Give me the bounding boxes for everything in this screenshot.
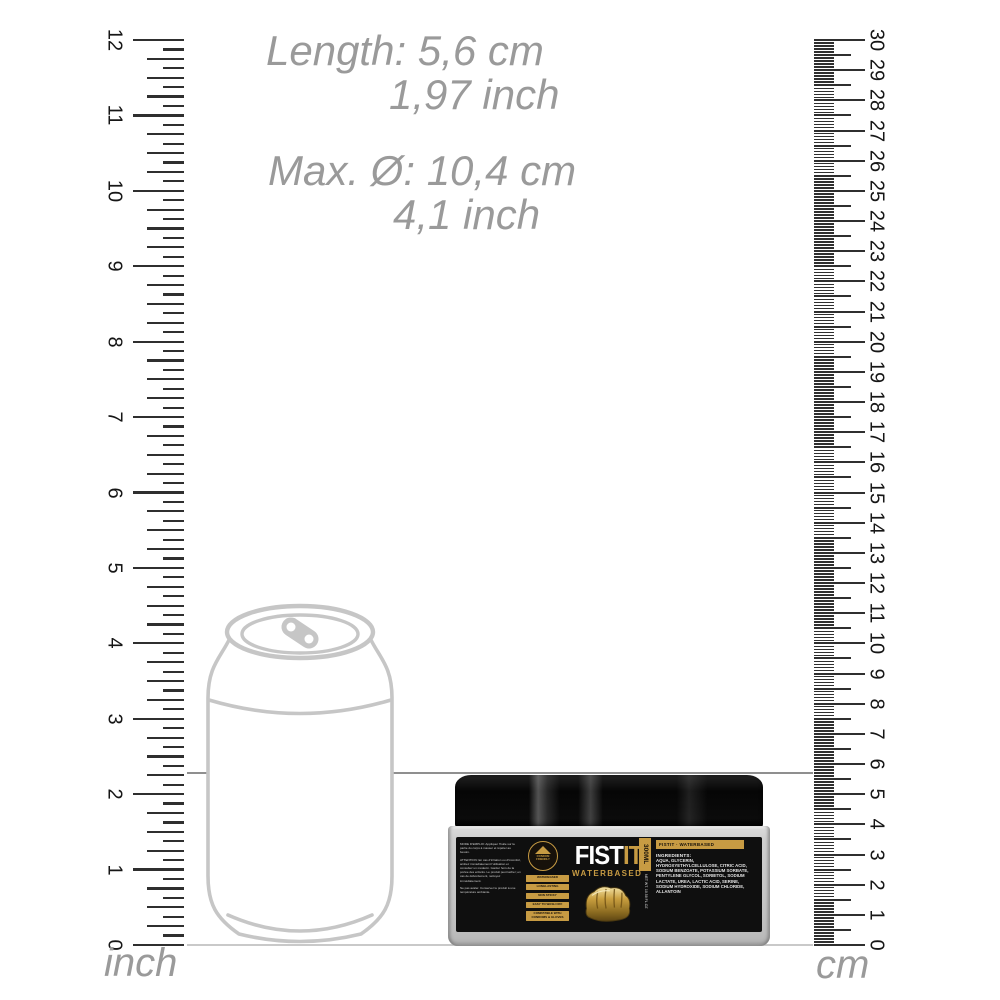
- ruler-tick: [814, 290, 834, 292]
- usage-paragraph: MODE D'EMPLOI: Appliquer l'huile sur la …: [460, 842, 521, 855]
- net-weight-text: NET WT. 10.58 FL.OZ: [640, 874, 651, 929]
- ruler-tick: [814, 640, 834, 642]
- ruler-tick: [147, 812, 184, 814]
- ruler-tick: [163, 859, 184, 861]
- ruler-tick: [814, 570, 834, 572]
- ruler-tick: [814, 827, 834, 829]
- ruler-tick: [814, 323, 834, 325]
- ruler-tick: [814, 453, 834, 455]
- ruler-tick: [814, 724, 834, 726]
- ruler-tick: [814, 302, 834, 304]
- ruler-tick: [147, 454, 184, 456]
- ruler-tick: [133, 642, 184, 644]
- ruler-tick: [814, 419, 834, 421]
- ruler-tick: [814, 293, 834, 295]
- ruler-tick: [133, 265, 184, 267]
- ruler-tick: [814, 223, 834, 225]
- ruler-tick: [814, 655, 834, 657]
- ruler-tick: [814, 649, 834, 651]
- ruler-tick: [814, 211, 834, 213]
- soda-can-illustration: [203, 600, 397, 950]
- ruler-tick: [814, 564, 834, 566]
- ruler-tick: [163, 256, 184, 258]
- ruler-tick: [814, 425, 834, 427]
- ruler-tick: [814, 854, 865, 856]
- ruler-tick: [814, 416, 851, 418]
- ruler-tick: [814, 468, 834, 470]
- ruler-tick: [814, 754, 834, 756]
- ruler-tick: [814, 899, 851, 901]
- ruler-tick: [163, 840, 184, 842]
- ruler-tick: [814, 718, 851, 720]
- ruler-tick: [814, 857, 834, 859]
- ruler-number: 23: [865, 240, 888, 262]
- can-tab-hole-top: [287, 623, 296, 632]
- ruler-number: 1: [103, 864, 126, 875]
- ruler-tick: [814, 389, 834, 391]
- ruler-number: 28: [865, 89, 888, 111]
- ruler-number: 24: [865, 210, 888, 232]
- ruler-tick: [814, 582, 865, 584]
- ruler-tick: [814, 579, 834, 581]
- ruler-tick: [163, 444, 184, 446]
- ruler-tick: [147, 473, 184, 475]
- ruler-tick: [814, 642, 865, 644]
- ingredients-block: FISTIT · WATERBASED INGREDIENTS: AQUA, G…: [656, 840, 758, 894]
- ruler-tick: [814, 208, 834, 210]
- ruler-tick: [814, 284, 834, 286]
- ruler-tick: [814, 84, 851, 86]
- ruler-tick: [163, 501, 184, 503]
- ruler-tick: [814, 498, 834, 500]
- ruler-tick: [814, 793, 865, 795]
- length-cm-text: Length: 5,6 cm: [266, 27, 544, 75]
- ruler-tick: [814, 510, 834, 512]
- ruler-tick: [814, 501, 834, 503]
- ruler-tick: [814, 45, 834, 47]
- ruler-tick: [814, 860, 834, 862]
- ruler-number: 18: [865, 391, 888, 413]
- ruler-tick: [133, 567, 184, 569]
- ruler-tick: [814, 821, 834, 823]
- ruler-tick: [814, 766, 834, 768]
- ruler-tick: [163, 124, 184, 126]
- ruler-tick: [814, 893, 834, 895]
- ruler-number: 11: [103, 105, 126, 126]
- ruler-tick: [163, 237, 184, 239]
- ruler-tick: [814, 199, 834, 201]
- ruler-tick: [814, 480, 834, 482]
- ruler-tick: [814, 196, 834, 198]
- ruler-tick: [814, 700, 834, 702]
- ruler-tick: [814, 534, 834, 536]
- ruler-tick: [814, 784, 834, 786]
- ruler-tick: [814, 217, 834, 219]
- ruler-tick: [814, 612, 865, 614]
- ruler-tick: [163, 671, 184, 673]
- ruler-tick: [163, 878, 184, 880]
- ruler-tick: [814, 742, 834, 744]
- ruler-tick: [147, 548, 184, 550]
- ruler-tick: [814, 679, 834, 681]
- ruler-tick: [147, 435, 184, 437]
- ruler-tick: [163, 463, 184, 465]
- ruler-tick: [814, 220, 865, 222]
- ruler-tick: [814, 413, 834, 415]
- ruler-tick: [814, 371, 865, 373]
- length-inch-text: 1,97 inch: [389, 71, 559, 119]
- ruler-tick: [814, 772, 834, 774]
- ruler-tick: [163, 388, 184, 390]
- ruler-tick: [814, 314, 834, 316]
- pyramid-icon: [535, 846, 551, 854]
- ruler-tick: [814, 712, 834, 714]
- ruler-tick: [814, 103, 834, 105]
- ruler-tick: [814, 905, 834, 907]
- ruler-tick: [814, 799, 834, 801]
- ruler-tick: [814, 688, 851, 690]
- ruler-tick: [147, 58, 184, 60]
- ruler-tick: [814, 81, 834, 83]
- ruler-number: 10: [103, 180, 126, 202]
- ruler-tick: [163, 557, 184, 559]
- ruler-tick: [814, 368, 834, 370]
- ruler-tick: [814, 359, 834, 361]
- ruler-number: 17: [865, 421, 888, 443]
- ruler-tick: [814, 446, 851, 448]
- ruler-tick: [814, 745, 834, 747]
- ruler-tick: [814, 685, 834, 687]
- ruler-tick: [814, 706, 834, 708]
- ruler-tick: [147, 510, 184, 512]
- ruler-tick: [814, 465, 834, 467]
- ruler-tick: [814, 676, 834, 678]
- ruler-number: 29: [865, 59, 888, 81]
- ruler-tick: [814, 94, 834, 96]
- ruler-tick: [814, 91, 834, 93]
- ruler-tick: [163, 425, 184, 427]
- ruler-tick: [814, 395, 834, 397]
- ruler-tick: [147, 133, 184, 135]
- ruler-tick: [814, 609, 834, 611]
- ruler-tick: [814, 247, 834, 249]
- ruler-tick: [814, 75, 834, 77]
- ruler-tick: [814, 778, 851, 780]
- ruler-tick: [147, 925, 184, 927]
- ruler-tick: [814, 193, 834, 195]
- ruler-tick: [814, 736, 834, 738]
- ruler-tick: [163, 934, 184, 936]
- ruler-number: 1: [865, 909, 888, 920]
- ruler-tick: [814, 311, 865, 313]
- ruler-number: 22: [865, 270, 888, 292]
- ruler-tick: [814, 492, 865, 494]
- ruler-tick: [814, 890, 834, 892]
- ruler-tick: [147, 227, 184, 229]
- feature-item: LONGLASTING: [526, 884, 569, 891]
- ruler-tick: [814, 350, 834, 352]
- ruler-tick: [163, 369, 184, 371]
- ruler-tick: [814, 507, 851, 509]
- ruler-tick: [814, 344, 834, 346]
- ruler-tick: [814, 489, 834, 491]
- ruler-tick: [814, 443, 834, 445]
- ruler-tick: [814, 938, 834, 940]
- ruler-tick: [814, 540, 834, 542]
- ruler-tick: [814, 751, 834, 753]
- ruler-tick: [133, 868, 184, 870]
- ruler-tick: [814, 428, 834, 430]
- ruler-tick: [814, 214, 834, 216]
- ruler-tick: [814, 525, 834, 527]
- ruler-tick: [814, 549, 834, 551]
- ruler-tick: [147, 887, 184, 889]
- product-dimension-figure: Length: 5,6 cm 1,97 inch Max. Ø: 10,4 cm…: [0, 0, 1000, 1000]
- ruler-tick: [814, 576, 834, 578]
- ruler-tick: [163, 520, 184, 522]
- ruler-tick: [133, 416, 184, 418]
- ruler-tick: [814, 760, 834, 762]
- ruler-tick: [814, 881, 834, 883]
- ruler-tick: [814, 823, 865, 825]
- ruler-tick: [814, 305, 834, 307]
- ruler-tick: [147, 774, 184, 776]
- ruler-tick: [814, 136, 834, 138]
- ruler-tick: [133, 793, 184, 795]
- ruler-number: 2: [103, 789, 126, 800]
- ruler-tick: [147, 378, 184, 380]
- ruler-tick: [814, 226, 834, 228]
- ruler-tick: [814, 875, 834, 877]
- ruler-tick: [814, 308, 834, 310]
- ruler-tick: [814, 434, 834, 436]
- ruler-tick: [814, 917, 834, 919]
- ruler-tick: [814, 851, 834, 853]
- ruler-number: 26: [865, 150, 888, 172]
- ruler-tick: [163, 916, 184, 918]
- ruler-number: 21: [865, 300, 888, 322]
- ruler-tick: [163, 199, 184, 201]
- ruler-tick: [814, 450, 834, 452]
- ruler-tick: [147, 906, 184, 908]
- gold-fist-graphic: [579, 880, 635, 924]
- ruler-tick: [133, 190, 184, 192]
- ruler-tick: [147, 831, 184, 833]
- ruler-number: 14: [865, 512, 888, 534]
- ruler-tick: [147, 95, 184, 97]
- ruler-tick: [814, 269, 834, 271]
- ruler-tick: [814, 471, 834, 473]
- ruler-tick: [814, 838, 851, 840]
- ruler-tick: [814, 97, 834, 99]
- ruler-tick: [133, 39, 184, 41]
- ruler-tick: [814, 106, 834, 108]
- ruler-tick: [814, 287, 834, 289]
- ruler-tick: [814, 757, 834, 759]
- ruler-tick: [814, 133, 834, 135]
- ruler-tick: [814, 830, 834, 832]
- ruler-tick: [814, 657, 851, 659]
- ruler-tick: [147, 152, 184, 154]
- jar-label: MODE D'EMPLOI: Appliquer l'huile sur la …: [456, 837, 762, 932]
- ruler-tick: [814, 241, 834, 243]
- ruler-tick: [814, 121, 834, 123]
- ruler-tick: [163, 576, 184, 578]
- ruler-tick: [814, 670, 834, 672]
- ruler-tick: [163, 614, 184, 616]
- ruler-tick: [814, 802, 834, 804]
- ruler-tick: [814, 667, 834, 669]
- ruler-tick: [814, 99, 865, 101]
- ruler-tick: [814, 157, 834, 159]
- ruler-tick: [163, 897, 184, 899]
- ruler-tick: [163, 765, 184, 767]
- ruler-tick: [814, 748, 851, 750]
- ruler-tick: [814, 543, 834, 545]
- ruler-tick: [814, 618, 834, 620]
- ruler-tick: [814, 567, 851, 569]
- ruler-tick: [814, 842, 834, 844]
- ruler-tick: [814, 606, 834, 608]
- ruler-tick: [814, 552, 865, 554]
- ruler-tick: [814, 637, 834, 639]
- ruler-tick: [814, 109, 834, 111]
- cm-unit-label: cm: [816, 943, 869, 988]
- ruler-tick: [163, 218, 184, 220]
- ruler-number: 10: [865, 632, 888, 654]
- ruler-tick: [814, 187, 834, 189]
- ruler-tick: [814, 929, 851, 931]
- ruler-tick: [814, 456, 834, 458]
- ruler-tick: [814, 48, 834, 50]
- ruler-tick: [163, 784, 184, 786]
- ruler-tick: [814, 118, 834, 120]
- ruler-tick: [163, 821, 184, 823]
- ruler-tick: [814, 160, 865, 162]
- can-tab-hole-bottom: [305, 635, 314, 644]
- ruler-tick: [814, 486, 834, 488]
- ruler-tick: [147, 680, 184, 682]
- ruler-tick: [163, 180, 184, 182]
- ruler-tick: [814, 51, 834, 53]
- ruler-tick: [814, 733, 865, 735]
- ruler-tick: [814, 374, 834, 376]
- ruler-tick: [814, 262, 834, 264]
- usage-paragraph: ATTENTION: En cas d'irritation ou d'inco…: [460, 858, 521, 883]
- ruler-tick: [814, 172, 834, 174]
- ruler-tick: [814, 555, 834, 557]
- ruler-tick: [814, 329, 834, 331]
- ruler-number: 19: [865, 361, 888, 383]
- ruler-tick: [814, 139, 834, 141]
- ruler-number: 25: [865, 180, 888, 202]
- ruler-tick: [814, 591, 834, 593]
- ruler-number: 8: [103, 336, 126, 347]
- ruler-tick: [163, 633, 184, 635]
- ruler-tick: [814, 597, 851, 599]
- ruler-tick: [147, 209, 184, 211]
- ruler-tick: [814, 815, 834, 817]
- ruler-tick: [163, 48, 184, 50]
- ruler-tick: [814, 280, 865, 282]
- ruler-tick: [814, 295, 851, 297]
- ruler-number: 12: [865, 572, 888, 594]
- ruler-tick: [814, 836, 834, 838]
- ruler-tick: [814, 673, 865, 675]
- ruler-tick: [814, 519, 834, 521]
- ruler-tick: [814, 866, 834, 868]
- ruler-tick: [814, 265, 851, 267]
- brand-name: FISTIT: [575, 843, 639, 868]
- ruler-tick: [814, 404, 834, 406]
- feature-item: WATERBASED: [526, 875, 569, 882]
- ruler-tick: [814, 178, 834, 180]
- ruler-tick: [814, 652, 834, 654]
- ruler-tick: [814, 476, 851, 478]
- ruler-tick: [163, 539, 184, 541]
- ruler-tick: [814, 522, 865, 524]
- ruler-tick: [814, 887, 834, 889]
- ruler-tick: [147, 623, 184, 625]
- ruler-tick: [814, 127, 834, 129]
- ruler-tick: [814, 845, 834, 847]
- ruler-tick: [163, 727, 184, 729]
- ruler-tick: [814, 317, 834, 319]
- variant-text: WATERBASED: [572, 869, 642, 878]
- ruler-tick: [163, 708, 184, 710]
- ruler-tick: [814, 646, 834, 648]
- ruler-tick: [814, 440, 834, 442]
- ruler-tick: [814, 691, 834, 693]
- ruler-tick: [814, 926, 834, 928]
- ruler-tick: [814, 320, 834, 322]
- ruler-tick: [814, 229, 834, 231]
- ruler-tick: [814, 715, 834, 717]
- ruler-tick: [814, 69, 865, 71]
- ruler-tick: [163, 293, 184, 295]
- ruler-tick: [814, 175, 851, 177]
- ruler-tick: [814, 142, 834, 144]
- ruler-tick: [814, 437, 834, 439]
- ruler-tick: [814, 697, 834, 699]
- ruler-tick: [814, 380, 834, 382]
- ruler-tick: [814, 703, 865, 705]
- ruler-number: 20: [865, 331, 888, 353]
- ruler-tick: [814, 272, 834, 274]
- ruler-tick: [163, 407, 184, 409]
- ruler-tick: [814, 585, 834, 587]
- ruler-tick: [814, 573, 834, 575]
- ruler-tick: [814, 72, 834, 74]
- usage-paragraph: Ne pas avaler. Conserver le produit à un…: [460, 886, 521, 894]
- ruler-tick: [814, 54, 851, 56]
- ruler-tick: [133, 114, 184, 116]
- ruler-tick: [814, 422, 834, 424]
- ruler-number: 7: [103, 412, 126, 423]
- ruler-tick: [814, 57, 834, 59]
- ruler-tick: [814, 923, 834, 925]
- ruler-tick: [814, 763, 865, 765]
- ruler-tick: [147, 303, 184, 305]
- ruler-tick: [814, 42, 834, 44]
- ruler-tick: [814, 151, 834, 153]
- ruler-tick: [814, 914, 865, 916]
- ruler-tick: [163, 86, 184, 88]
- ruler-tick: [814, 114, 851, 116]
- ruler-tick: [814, 66, 834, 68]
- ruler-tick: [814, 253, 834, 255]
- ruler-tick: [814, 920, 834, 922]
